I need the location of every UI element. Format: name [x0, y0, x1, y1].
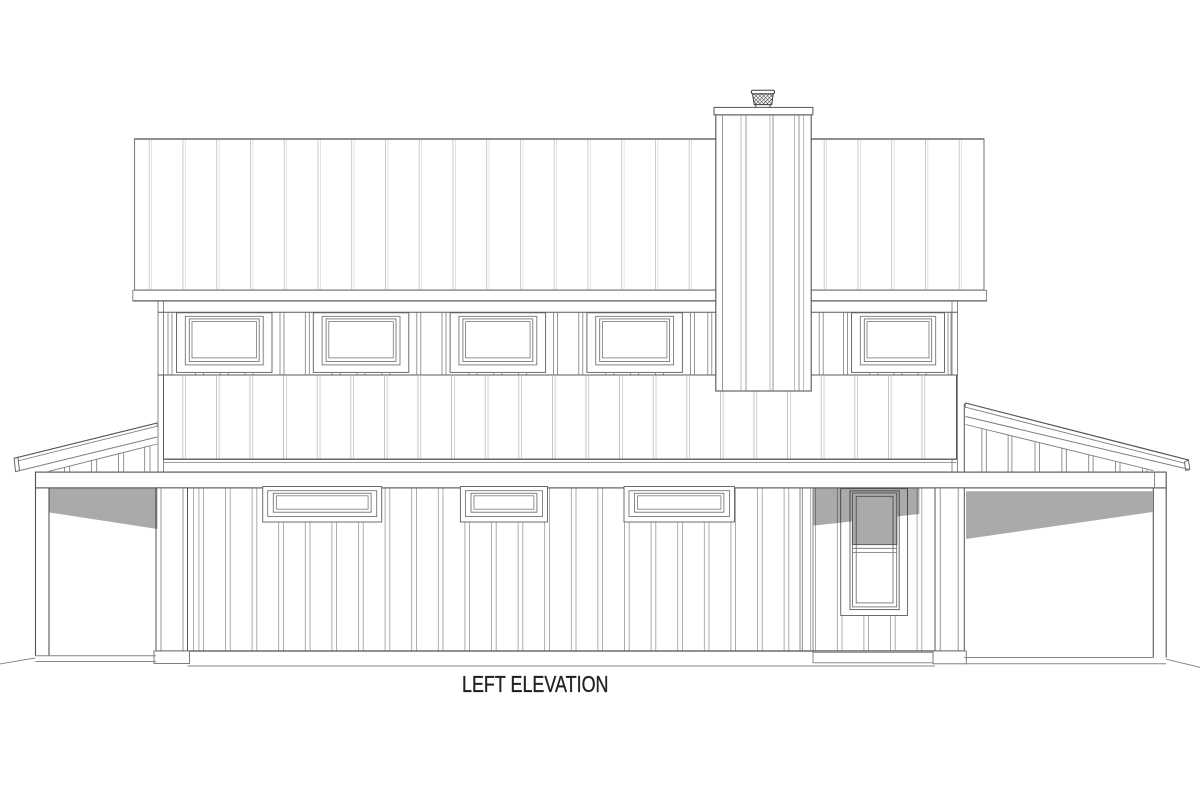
- svg-text:LEFT ELEVATION: LEFT ELEVATION: [462, 671, 609, 697]
